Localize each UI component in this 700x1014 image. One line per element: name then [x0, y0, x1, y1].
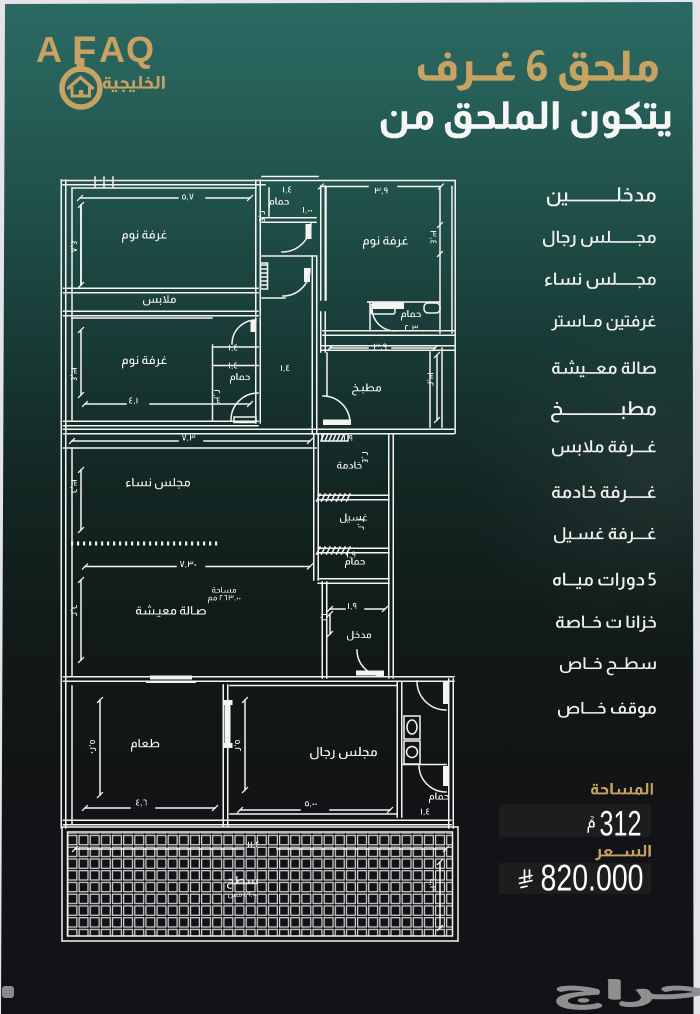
svg-text:2: 2	[590, 814, 594, 823]
svg-text:A: A	[36, 29, 62, 70]
svg-text:820.000: 820.000	[541, 857, 644, 898]
svg-text:AQ: AQ	[99, 29, 155, 70]
svg-text:312: 312	[599, 805, 641, 844]
